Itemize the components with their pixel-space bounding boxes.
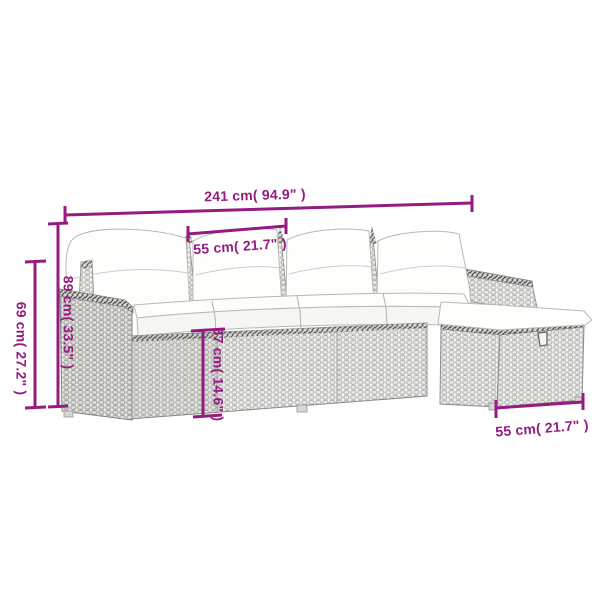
ottoman-front-left-face: [440, 327, 500, 407]
dimension-label-armrest-height: 69 cm( 27.2" ): [13, 289, 30, 409]
ottoman-handle: [538, 332, 547, 346]
ottoman-cushion: [438, 302, 592, 330]
ottoman: [438, 302, 592, 407]
furniture-illustration: [0, 0, 600, 600]
product-dimension-diagram: 241 cm( 94.9" ) 55 cm( 21.7" ) 69 cm( 27…: [0, 0, 600, 600]
sofa-base: [130, 323, 427, 419]
dimension-label-base-height: 37 cm( 14.6" ): [210, 315, 227, 435]
dimension-label-back-height: 89 cm( 33.5" ): [60, 263, 77, 383]
